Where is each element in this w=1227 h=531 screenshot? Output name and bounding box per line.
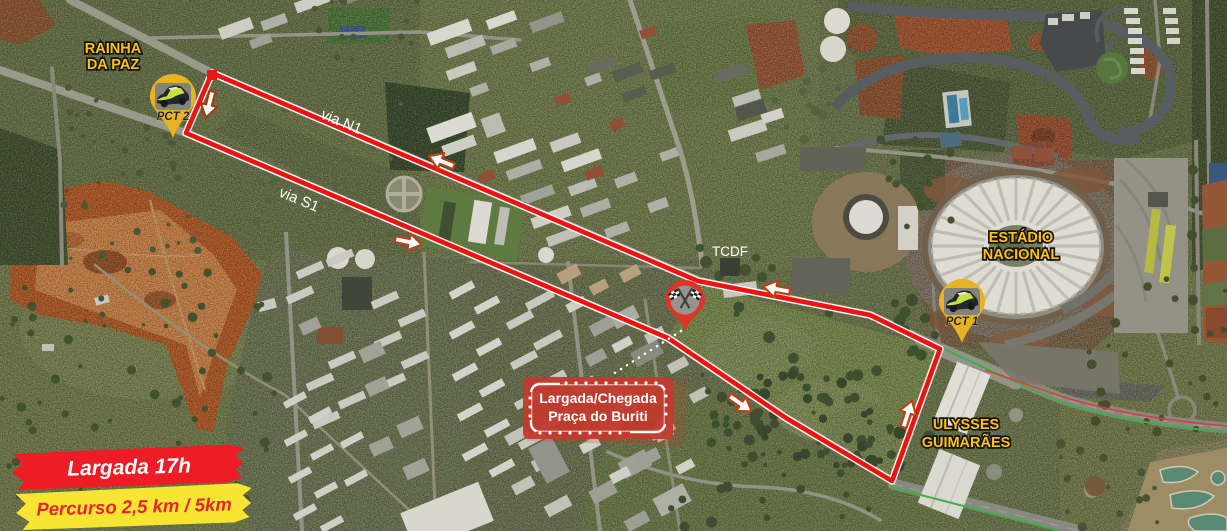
svg-text:ESTÁDIO: ESTÁDIO bbox=[989, 229, 1053, 246]
svg-text:Praça do Buriti: Praça do Buriti bbox=[548, 408, 648, 424]
svg-text:PCT 1: PCT 1 bbox=[946, 316, 979, 328]
svg-text:Largada/Chegada: Largada/Chegada bbox=[539, 390, 657, 406]
svg-text:DA PAZ: DA PAZ bbox=[87, 57, 140, 73]
svg-text:NACIONAL: NACIONAL bbox=[983, 247, 1060, 263]
svg-text:PCT 2: PCT 2 bbox=[157, 111, 190, 123]
svg-text:Largada 17h: Largada 17h bbox=[67, 454, 191, 480]
svg-text:ULYSSES: ULYSSES bbox=[933, 417, 1000, 433]
svg-text:TCDF: TCDF bbox=[712, 244, 748, 259]
svg-text:GUIMARÃES: GUIMARÃES bbox=[922, 433, 1011, 451]
svg-text:RAINHA: RAINHA bbox=[85, 41, 142, 57]
